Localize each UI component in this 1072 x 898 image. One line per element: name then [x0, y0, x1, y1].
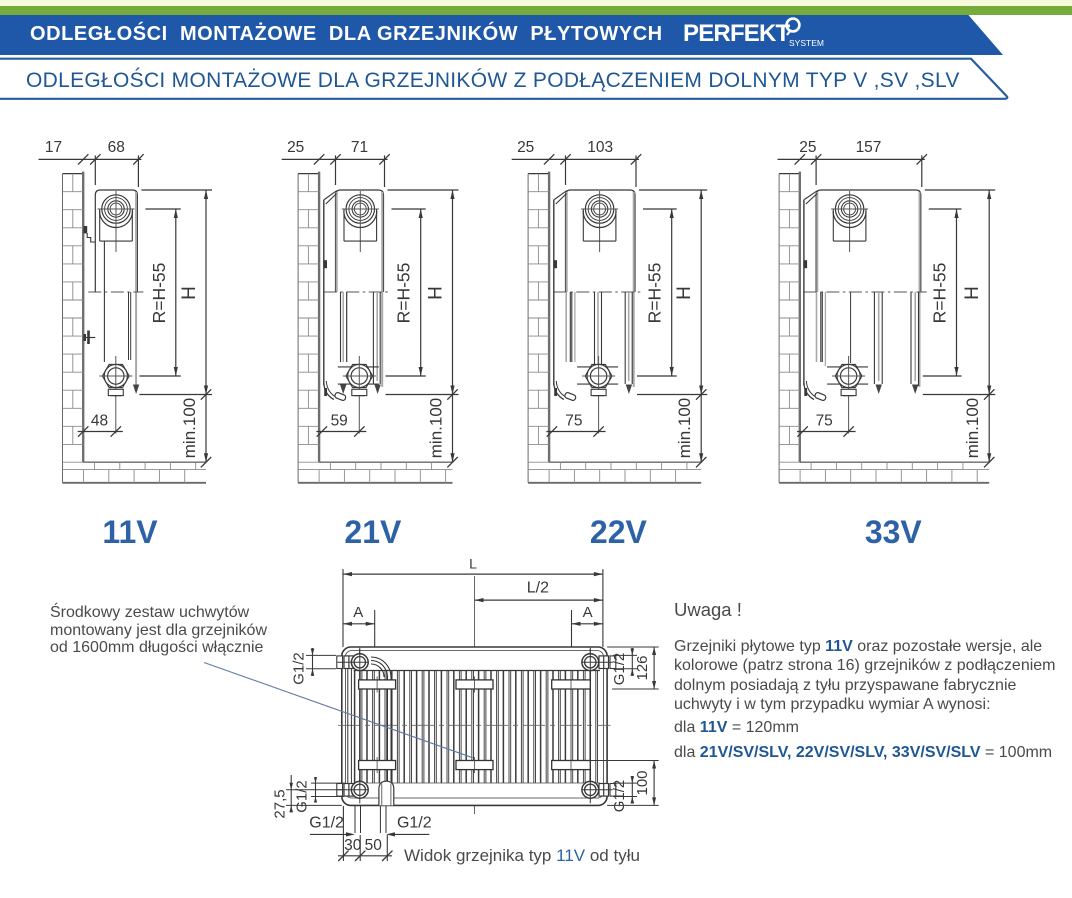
svg-text:30: 30 [344, 837, 362, 854]
svg-text:11V: 11V [102, 514, 158, 550]
svg-text:L: L [469, 555, 477, 571]
svg-text:G1/2: G1/2 [294, 780, 311, 813]
svg-text:L/2: L/2 [527, 580, 549, 597]
svg-text:17: 17 [45, 139, 62, 156]
svg-text:H: H [962, 286, 983, 300]
svg-text:min.100: min.100 [675, 398, 694, 458]
svg-text:H: H [179, 286, 200, 300]
svg-text:27,5: 27,5 [272, 789, 289, 818]
svg-text:R=H-55: R=H-55 [394, 263, 414, 324]
svg-text:68: 68 [108, 139, 125, 156]
svg-text:75: 75 [816, 413, 833, 430]
svg-text:48: 48 [91, 413, 108, 430]
svg-text:R=H-55: R=H-55 [930, 263, 950, 324]
svg-text:R=H-55: R=H-55 [149, 263, 169, 324]
svg-text:100: 100 [634, 770, 651, 795]
svg-text:A: A [353, 604, 363, 621]
svg-text:G1/2: G1/2 [309, 815, 344, 832]
svg-text:59: 59 [331, 413, 348, 430]
svg-text:75: 75 [565, 413, 582, 430]
svg-text:103: 103 [587, 139, 613, 156]
svg-text:50: 50 [365, 837, 383, 854]
svg-text:G1/2: G1/2 [291, 652, 308, 685]
svg-text:min.100: min.100 [427, 398, 446, 458]
svg-text:25: 25 [517, 139, 534, 156]
svg-text:A: A [583, 604, 593, 621]
svg-text:126: 126 [634, 655, 651, 680]
svg-text:G1/2: G1/2 [397, 815, 432, 832]
svg-text:71: 71 [351, 139, 368, 156]
svg-text:min.100: min.100 [963, 398, 982, 458]
svg-text:25: 25 [799, 139, 816, 156]
svg-text:min.100: min.100 [180, 398, 199, 458]
svg-text:157: 157 [856, 139, 882, 156]
svg-text:H: H [674, 286, 695, 300]
svg-text:25: 25 [287, 139, 304, 156]
svg-text:33V: 33V [865, 514, 923, 550]
svg-text:22V: 22V [590, 514, 648, 550]
svg-text:H: H [426, 286, 447, 300]
svg-text:21V: 21V [344, 514, 402, 550]
svg-text:R=H-55: R=H-55 [645, 263, 665, 324]
